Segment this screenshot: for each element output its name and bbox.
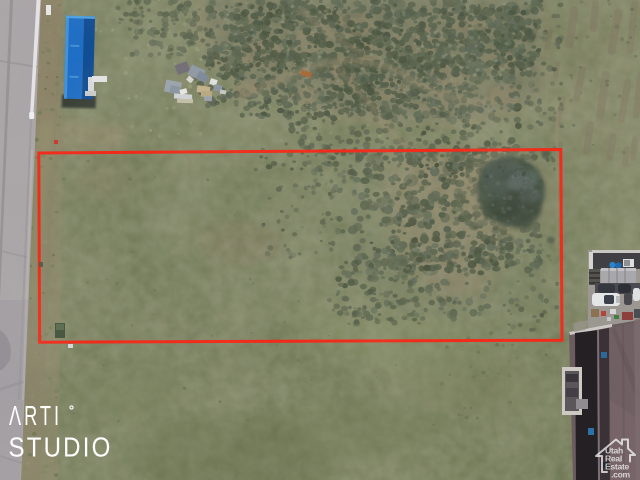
svg-text:ΛRTI: ΛRTI (9, 400, 62, 431)
svg-text:STUDIO: STUDIO (9, 432, 113, 463)
svg-text:.com: .com (611, 470, 631, 480)
